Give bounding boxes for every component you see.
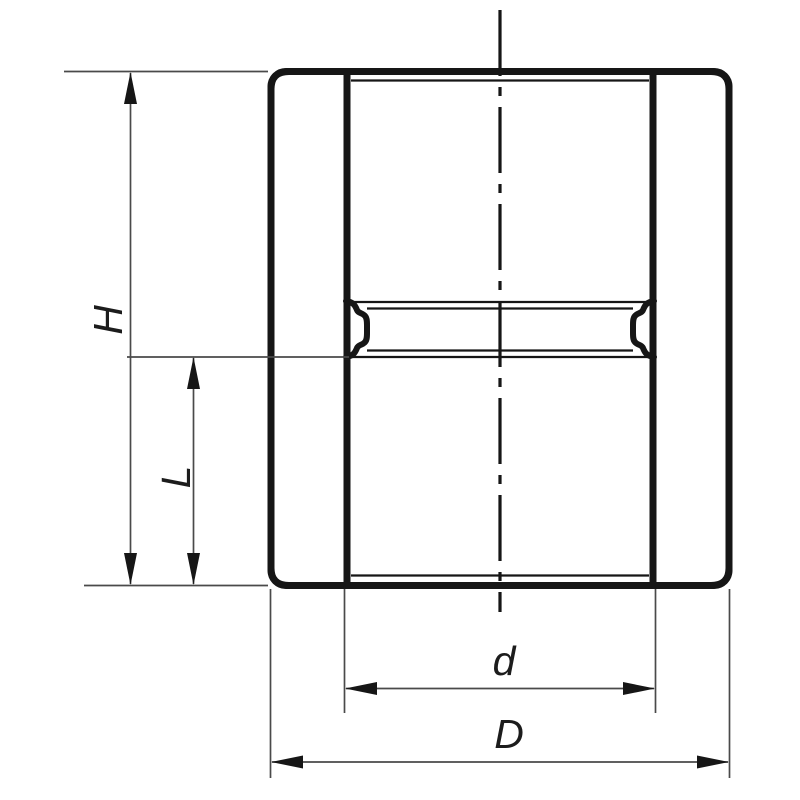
dimension-L: L	[127, 357, 349, 585]
arrow-d-right	[623, 682, 655, 695]
knurl-band-left	[271, 72, 347, 586]
arrow-L-bottom	[187, 553, 200, 585]
arrow-D-left	[271, 756, 303, 769]
dimension-H: H	[64, 72, 268, 586]
label-H: H	[85, 305, 131, 335]
arrow-D-right	[697, 756, 729, 769]
arrow-H-bottom	[124, 553, 137, 585]
arrow-d-left	[345, 682, 377, 695]
technical-drawing-canvas: H L d D	[0, 0, 800, 800]
arrow-H-top	[124, 72, 137, 104]
knurl-band-right	[653, 72, 729, 586]
label-d: d	[493, 638, 517, 684]
coupling-drawing: H L d D	[0, 0, 800, 800]
arrow-L-top	[187, 357, 200, 389]
label-L: L	[153, 466, 199, 489]
label-D: D	[494, 711, 524, 757]
